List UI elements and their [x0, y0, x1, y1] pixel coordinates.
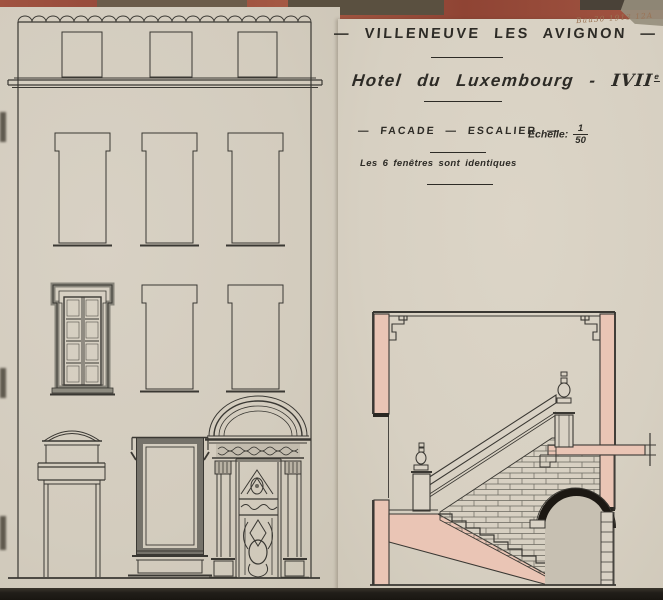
attic-windows	[62, 32, 277, 77]
portal-carved-frieze	[212, 444, 304, 461]
century-roman-numeral: IVII	[611, 71, 654, 91]
rule-under-note	[427, 184, 493, 185]
lower-newel-post	[411, 443, 432, 511]
upper-newel-post	[553, 372, 575, 447]
portal-door-leaf	[236, 459, 281, 577]
sheet-subtitle: Hotel du Luxembourg - IVIIe	[351, 71, 633, 91]
title-dash-left: —	[333, 26, 351, 42]
main-baroque-portal	[205, 396, 311, 578]
scale-annotation: Echelle:150	[528, 124, 588, 145]
scale-fraction: 150	[573, 124, 588, 145]
ceiling-and-cornices	[389, 316, 600, 340]
subtitle-text: Hotel du Luxembourg	[351, 71, 575, 90]
rule-under-labels	[430, 152, 486, 153]
third-floor-windows	[53, 133, 285, 246]
scale-denominator: 50	[573, 134, 588, 146]
cornice	[8, 78, 322, 88]
scanned-drawing-sheet: Bau30 1913 12A — VILLENEUVE LES AVIGNON …	[0, 0, 663, 600]
left-wall-cap	[373, 413, 389, 417]
label-facade: FACADE	[380, 125, 436, 137]
arch-jamb-coursing	[601, 512, 613, 585]
portal-arched-pediment	[205, 396, 311, 443]
facade-elevation	[8, 16, 322, 578]
second-floor-window-detailed	[50, 285, 115, 395]
ground-floor-framed-portal	[128, 438, 212, 576]
staircase-section	[370, 312, 656, 587]
title-text: VILLENEUVE LES AVIGNON	[364, 26, 627, 42]
title-dash-right: —	[640, 26, 658, 42]
subtitle-separator: -	[588, 71, 597, 90]
second-floor-windows-plain	[140, 285, 285, 392]
rule-under-title	[431, 57, 503, 58]
century-superscript: e	[654, 72, 661, 82]
label-dash: —	[357, 125, 371, 137]
scale-label: Echelle:	[528, 128, 568, 140]
scale-numerator: 1	[576, 124, 585, 134]
label-dash: —	[445, 125, 459, 137]
roof-tile-scallops	[18, 16, 311, 22]
photo-bottom-edge	[0, 588, 663, 600]
sheet-title: — VILLENEUVE LES AVIGNON —	[333, 26, 624, 42]
windows-note: Les 6 fenêtres sont identiques	[360, 158, 517, 169]
rule-under-subtitle	[424, 101, 502, 102]
ground-floor-niche-door	[38, 431, 105, 577]
